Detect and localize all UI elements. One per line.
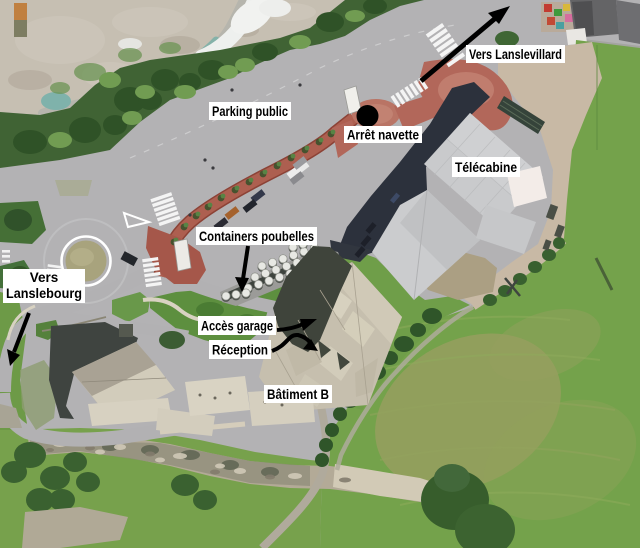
svg-text:Accès garage: Accès garage [201,319,273,334]
svg-text:Arrêt navette: Arrêt navette [347,128,419,143]
svg-text:Télécabine: Télécabine [455,160,517,175]
svg-text:Bâtiment B: Bâtiment B [267,387,329,402]
svg-text:Parking public: Parking public [212,104,288,119]
svg-text:Réception: Réception [212,343,268,358]
svg-text:Containers poubelles: Containers poubelles [199,229,314,244]
svg-text:Vers: Vers [30,270,59,285]
svg-text:Lanslebourg: Lanslebourg [6,286,82,301]
svg-text:Vers Lanslevillard: Vers Lanslevillard [469,47,562,62]
